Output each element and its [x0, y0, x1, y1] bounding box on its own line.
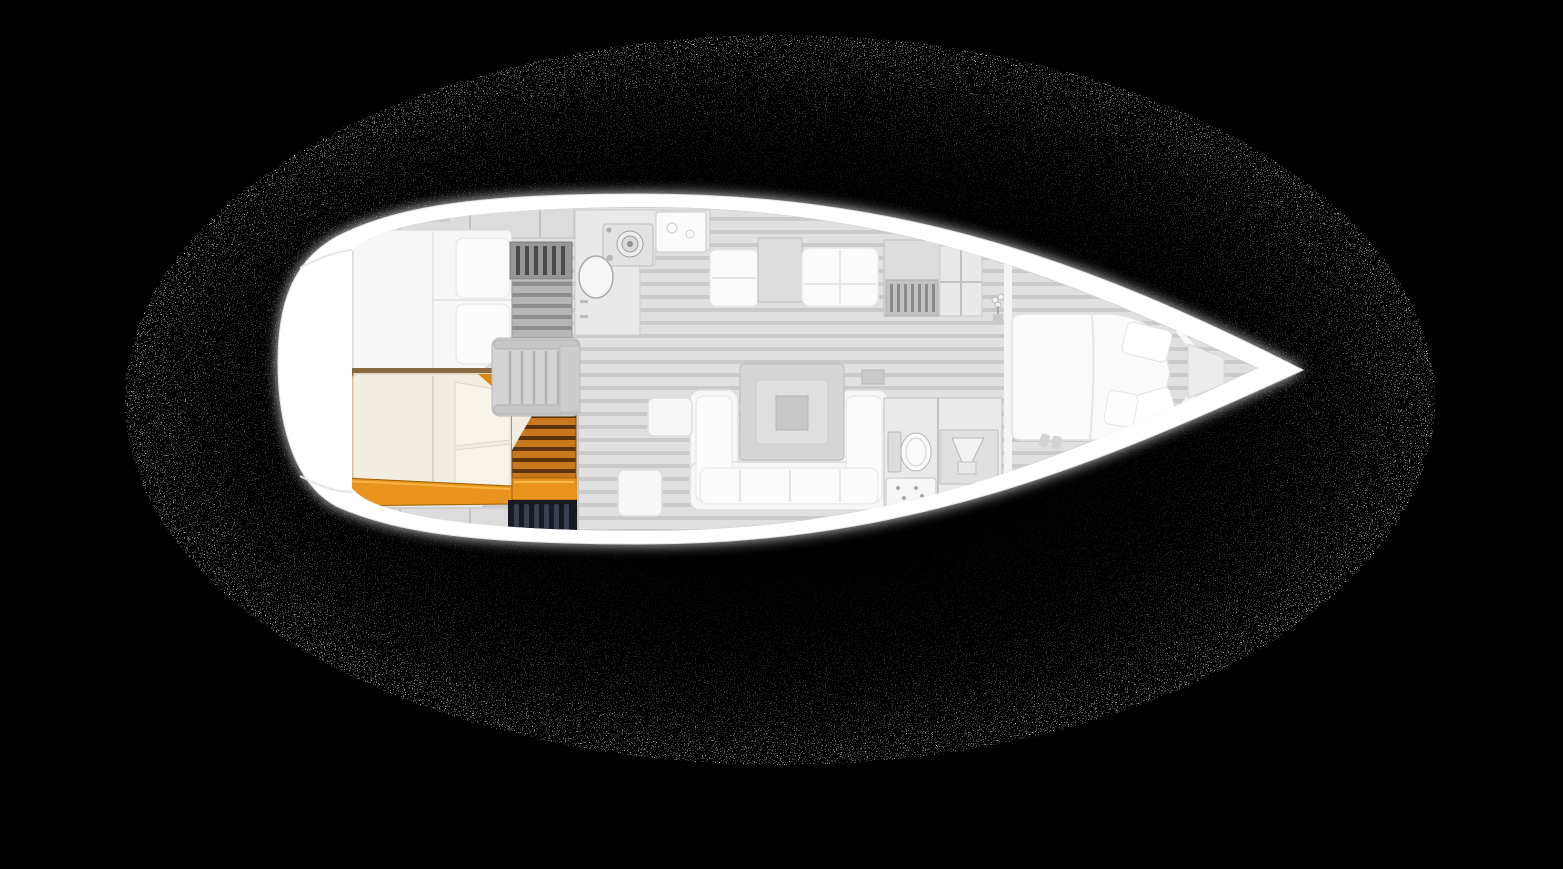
floorplan-stage [0, 0, 1563, 869]
region-v-berth[interactable] [1010, 300, 1210, 450]
boat-floorplan-canvas [0, 0, 1563, 869]
region-port-aft-cabin[interactable] [344, 206, 574, 372]
settee-cabinet [758, 238, 802, 302]
region-head [884, 396, 1004, 512]
region-saloon [620, 340, 890, 515]
region-galley [575, 208, 710, 338]
region-starboard-aft-cabin[interactable] [344, 368, 580, 534]
